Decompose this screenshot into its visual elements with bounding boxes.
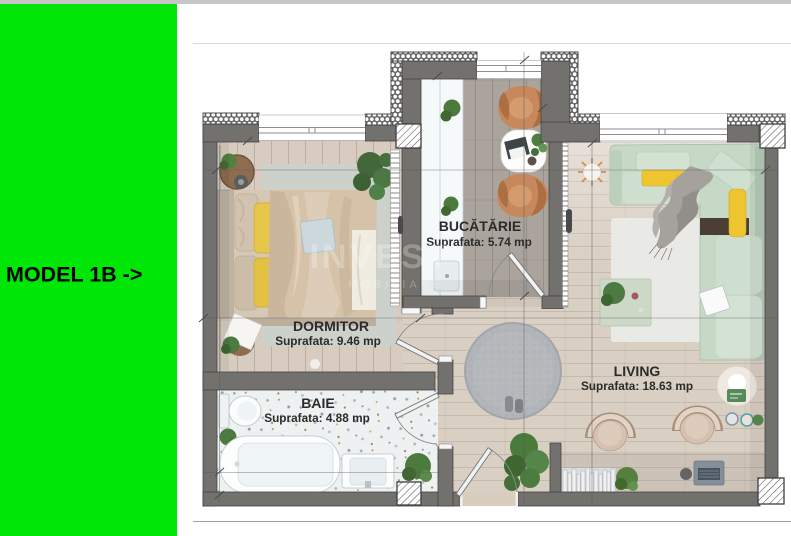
svg-text:DORMITOR: DORMITOR [293,318,369,334]
svg-text:MOBILIARE: MOBILIARE [348,279,444,291]
svg-text:LIVING: LIVING [614,363,661,379]
svg-text:Suprafata: 9.46 mp: Suprafata: 9.46 mp [275,334,381,348]
svg-text:BUCĂTĂRIE: BUCĂTĂRIE [439,218,521,234]
svg-text:Suprafata: 4.88 mp: Suprafata: 4.88 mp [264,411,370,425]
svg-text:Suprafata: 18.63 mp: Suprafata: 18.63 mp [581,379,693,393]
svg-text:BAIE: BAIE [301,395,334,411]
svg-text:MODEL 1B ->: MODEL 1B -> [6,263,142,287]
svg-text:INVEST: INVEST [310,238,451,276]
